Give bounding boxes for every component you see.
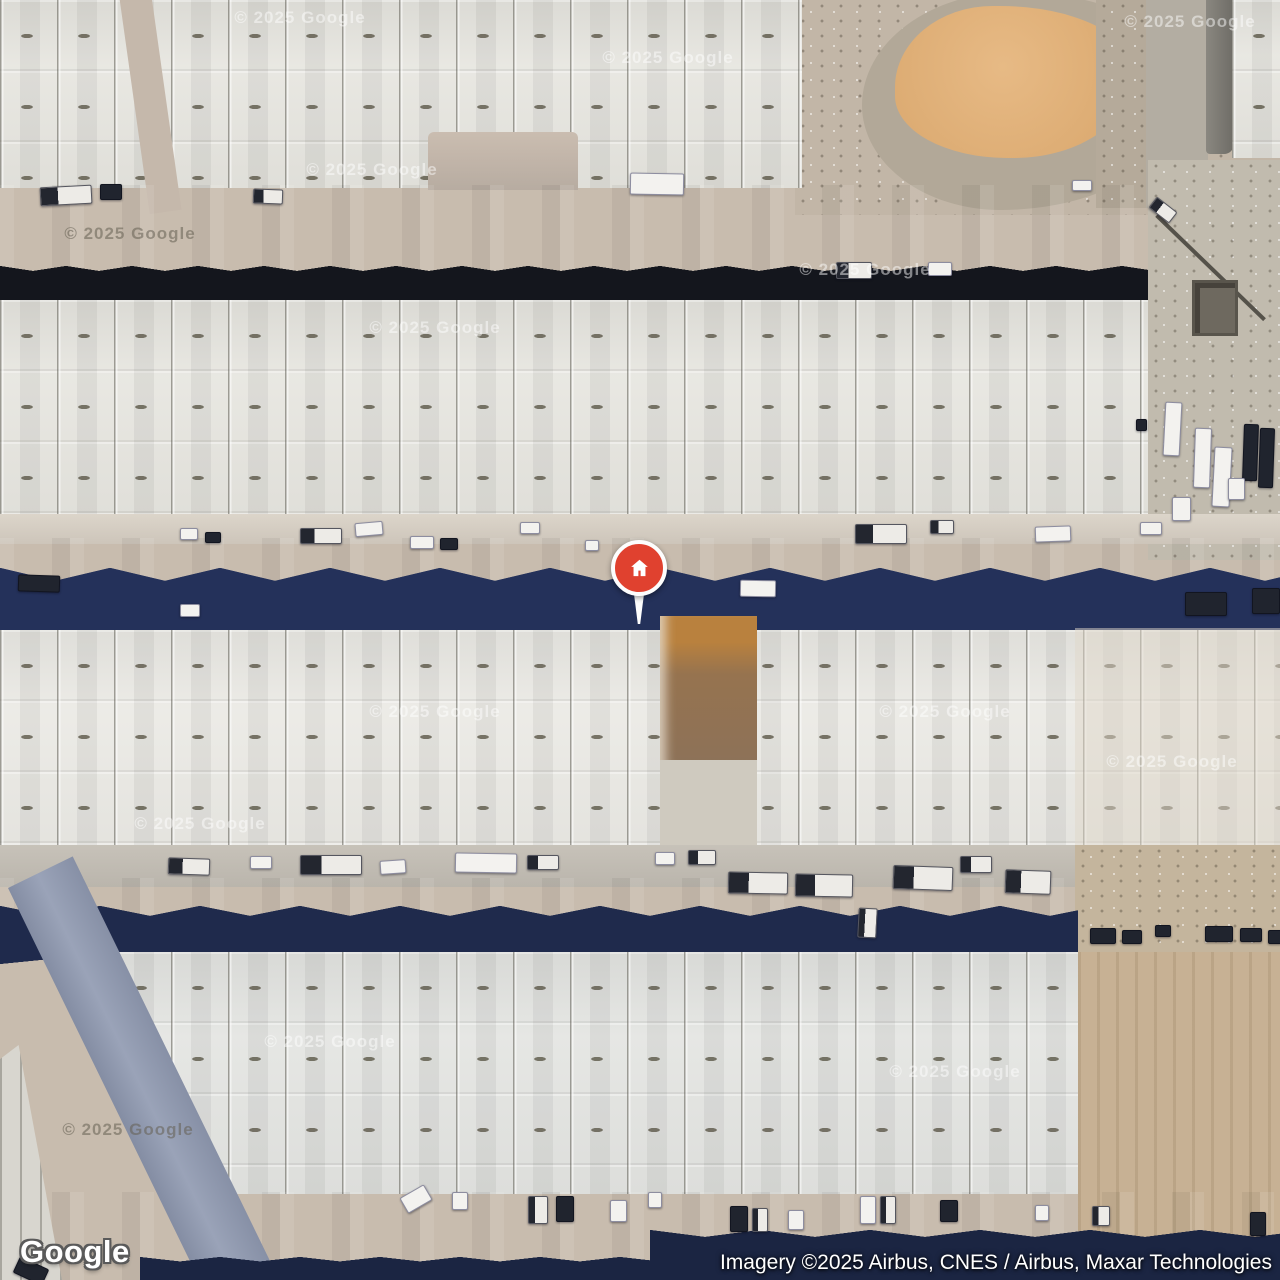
vehicle [1035,525,1072,542]
dirt-east-mid [1075,845,1280,962]
vehicle [655,852,675,865]
vehicle [1035,1205,1049,1221]
vehicle [520,522,540,534]
vehicle [40,185,93,207]
vehicle [380,859,407,875]
vehicle [440,538,458,550]
warehouse-band-2 [0,300,1158,520]
vehicle [860,1196,876,1224]
vehicle [253,188,284,204]
vehicle [1242,424,1259,481]
haze-overlay-east [1075,628,1280,860]
vehicle [940,1200,958,1222]
vehicle [354,521,383,537]
vehicle [1136,419,1147,431]
vehicle [1172,497,1191,521]
vehicle [1005,869,1052,895]
google-logo[interactable]: Google [20,1234,130,1270]
vehicle [930,520,954,534]
warehouse-band-1-right [1232,0,1280,158]
vehicle [795,873,853,897]
vehicle [1185,592,1227,616]
satellite-map-canvas[interactable]: © 2025 Google© 2025 Google© 2025 Google©… [0,0,1280,1280]
vehicle [300,528,342,544]
vehicle [688,850,716,865]
building-shadow-strip [1206,0,1234,154]
vehicle [836,262,872,279]
vehicle [728,871,788,894]
map-marker-home[interactable] [610,540,668,624]
apron-notch [428,132,578,190]
roof-shadow-3 [0,926,1078,954]
roof-shadow-bottom-left [140,1266,655,1280]
vehicle [455,852,517,873]
vehicle [1155,925,1171,937]
concrete-roof-patch [660,760,757,858]
vehicle [1252,588,1280,614]
vehicle [752,1208,768,1232]
vehicle [180,528,198,540]
vehicle [630,173,684,196]
vehicle [585,540,599,551]
vehicle [168,857,211,875]
vehicle [928,262,952,276]
vehicle [528,1196,548,1224]
marker-stem [634,594,644,624]
vehicle [1090,928,1116,944]
vehicle [410,536,434,549]
vehicle [180,604,200,617]
vehicle [1163,402,1183,457]
vehicle [1258,428,1275,488]
vehicle [730,1206,748,1232]
crane-base [1192,280,1238,336]
vehicle [893,865,954,891]
marker-circle [611,540,667,596]
home-icon [626,555,653,582]
vehicle [1240,928,1262,942]
vehicle [1140,522,1162,535]
vehicle [1193,428,1212,489]
vehicle [960,856,992,873]
brown-roof-patch [660,616,757,762]
vehicle [1122,930,1142,944]
warehouse-band-1 [0,0,802,188]
imagery-attribution: Imagery ©2025 Airbus, CNES / Airbus, Max… [720,1251,1272,1275]
vehicle [610,1200,627,1222]
vehicle [648,1192,662,1208]
vehicle [1268,930,1280,944]
vehicle [1072,180,1092,191]
vehicle [250,856,272,869]
vehicle [300,855,362,875]
vehicle [527,855,559,870]
vehicle [1250,1212,1266,1236]
roof-shadow-1 [0,276,1148,302]
vehicle [1092,1206,1110,1226]
vehicle [1228,478,1245,500]
vehicle [18,574,61,592]
vehicle [1205,926,1233,942]
vehicle [788,1210,804,1230]
vehicle [880,1196,896,1224]
vehicle [855,524,907,544]
vehicle [740,580,776,598]
vehicle [556,1196,574,1222]
vehicle [452,1192,468,1210]
rubble-strip [1096,0,1148,208]
vehicle [205,532,221,543]
vehicle [100,184,122,200]
vehicle [857,908,878,939]
